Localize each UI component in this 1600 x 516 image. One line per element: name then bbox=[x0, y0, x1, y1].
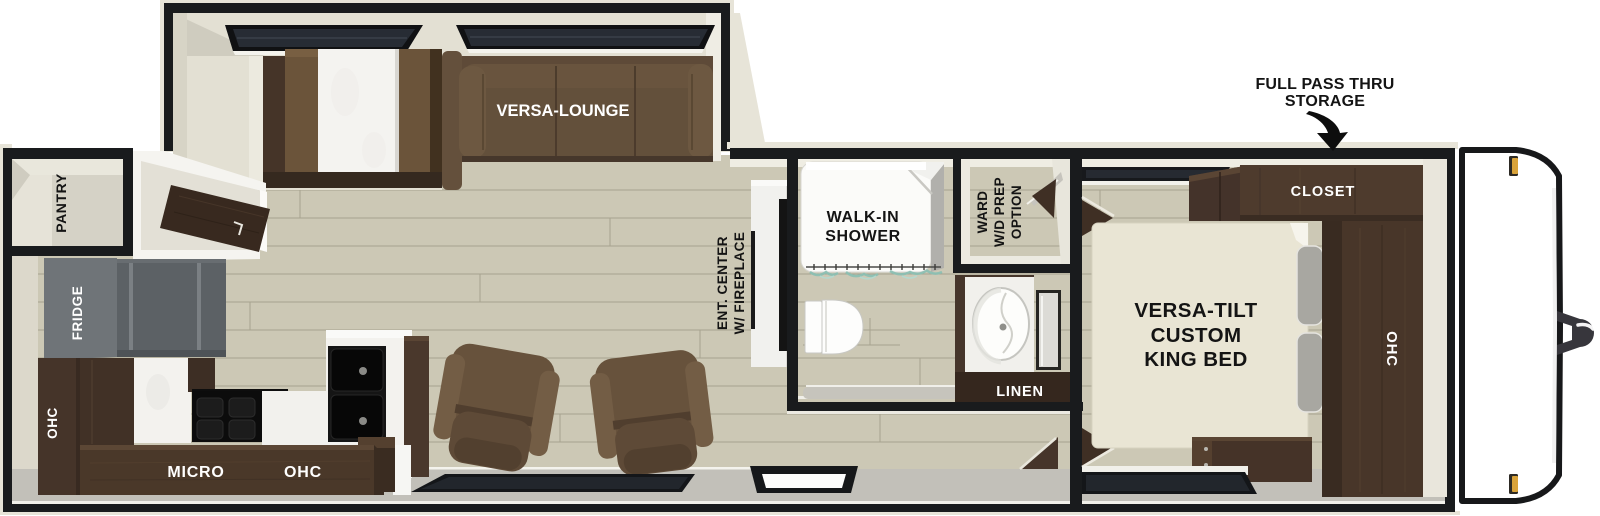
svg-text:OPTION: OPTION bbox=[1009, 185, 1024, 239]
svg-text:MICRO: MICRO bbox=[167, 464, 224, 481]
svg-text:SHOWER: SHOWER bbox=[825, 228, 901, 245]
svg-text:FRIDGE: FRIDGE bbox=[70, 286, 85, 341]
svg-text:W/ FIREPLACE: W/ FIREPLACE bbox=[732, 232, 747, 335]
svg-text:VERSA-LOUNGE: VERSA-LOUNGE bbox=[497, 102, 630, 120]
svg-text:W/D PREP: W/D PREP bbox=[992, 177, 1007, 247]
svg-text:STORAGE: STORAGE bbox=[1285, 93, 1365, 110]
svg-text:CLOSET: CLOSET bbox=[1291, 184, 1356, 200]
svg-text:WALK-IN: WALK-IN bbox=[827, 209, 900, 226]
svg-text:OHC: OHC bbox=[284, 464, 322, 481]
svg-text:LINEN: LINEN bbox=[996, 384, 1044, 400]
svg-text:FULL PASS THRU: FULL PASS THRU bbox=[1255, 76, 1394, 93]
svg-text:CUSTOM: CUSTOM bbox=[1151, 324, 1242, 347]
svg-text:ENT. CENTER: ENT. CENTER bbox=[715, 236, 730, 330]
svg-text:PANTRY: PANTRY bbox=[53, 173, 69, 233]
svg-text:OHC: OHC bbox=[1383, 331, 1400, 367]
svg-text:VERSA-TILT: VERSA-TILT bbox=[1134, 299, 1257, 322]
svg-text:OHC: OHC bbox=[45, 407, 60, 439]
svg-text:KING BED: KING BED bbox=[1144, 348, 1247, 371]
svg-text:WARD: WARD bbox=[975, 191, 990, 234]
